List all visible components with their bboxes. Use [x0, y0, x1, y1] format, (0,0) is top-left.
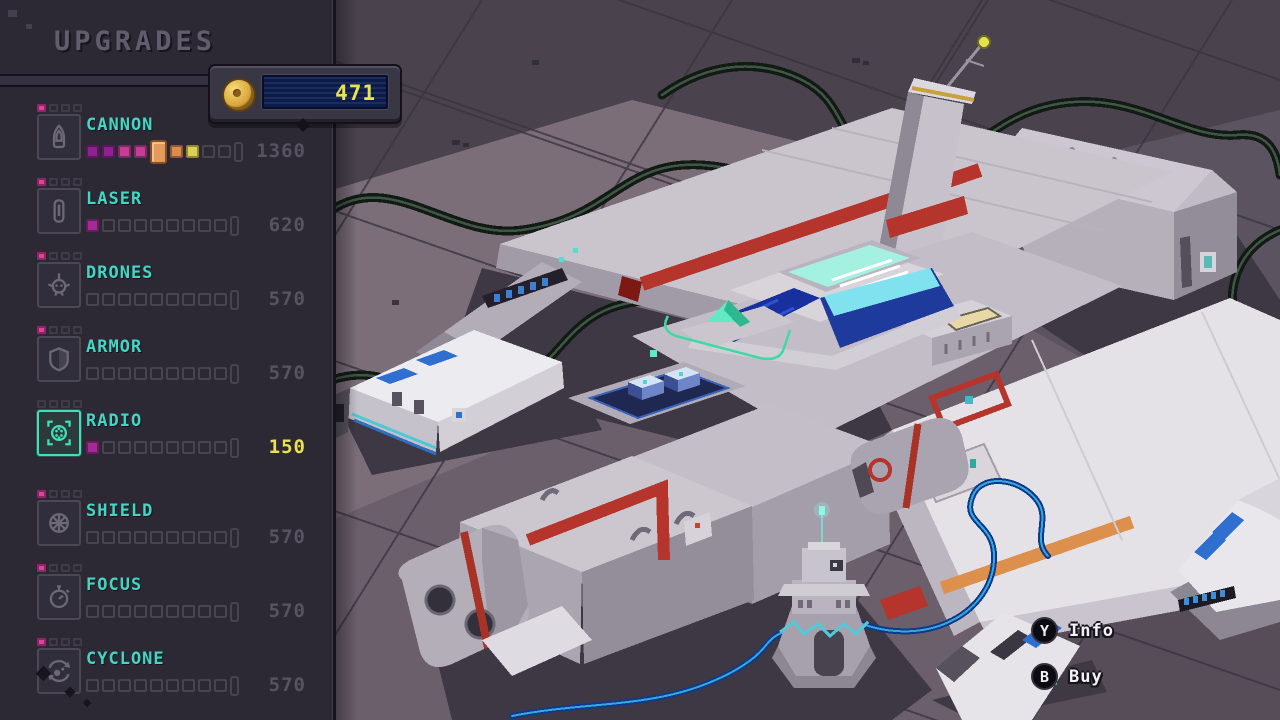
upgrade-name: FOCUS: [86, 575, 142, 595]
upgrade-name: RADIO: [86, 411, 142, 431]
upgrade-price: 570: [214, 362, 306, 384]
screw-decoration: [26, 24, 32, 29]
focus-icon: [37, 574, 81, 620]
radio-icon: [37, 410, 81, 456]
bar-cell: [150, 441, 163, 454]
bar-cell: [102, 605, 115, 618]
bar-cell: [166, 441, 179, 454]
bar-cell: [118, 531, 131, 544]
bar-cell: [150, 219, 163, 232]
bar-cell: [102, 367, 115, 380]
upgrade-row-shield[interactable]: SHIELD 570: [0, 490, 333, 558]
bar-cell: [86, 679, 99, 692]
bar-cell: [134, 531, 147, 544]
level-pip: [37, 400, 46, 408]
bar-cell: [198, 219, 211, 232]
bar-cell: [86, 531, 99, 544]
bar-cell: [198, 441, 211, 454]
upgrade-pips: [37, 326, 82, 334]
bar-cell: [102, 531, 115, 544]
upgrade-row-laser[interactable]: LASER 620: [0, 178, 333, 246]
drones-icon: [37, 262, 81, 308]
bar-cell: [118, 679, 131, 692]
upgrade-screen: UPGRADES CANNON 1360 LASER 620 DRONES 57…: [0, 0, 1280, 720]
bar-cell: [134, 219, 147, 232]
level-pip: [61, 326, 70, 334]
bar-cell: [198, 679, 211, 692]
level-pip: [37, 326, 46, 334]
bar-cell: [186, 145, 199, 158]
bar-cell: [182, 531, 195, 544]
bar-cell: [86, 441, 99, 454]
bar-cell: [182, 367, 195, 380]
currency-display: 471: [262, 75, 388, 109]
bar-cell: [118, 441, 131, 454]
antenna-beacon: [978, 36, 990, 48]
level-pip: [61, 252, 70, 260]
upgrade-pips: [37, 638, 82, 646]
upgrade-price: 620: [214, 214, 306, 236]
upgrade-price: 570: [214, 288, 306, 310]
bar-cell: [134, 145, 147, 158]
upgrade-name: SHIELD: [86, 501, 153, 521]
bar-cell: [166, 679, 179, 692]
level-pip: [49, 252, 58, 260]
prompt-info-label: Info: [1069, 621, 1114, 641]
bar-cell: [86, 605, 99, 618]
bar-cell: [134, 441, 147, 454]
bar-cell: [166, 531, 179, 544]
bar-cell: [166, 219, 179, 232]
bar-cell: [86, 367, 99, 380]
bar-cell: [182, 679, 195, 692]
bar-cursor: [150, 140, 167, 164]
level-pip: [73, 104, 82, 112]
level-pip: [49, 400, 58, 408]
bar-cell: [102, 293, 115, 306]
bar-cell: [102, 441, 115, 454]
bar-cell: [166, 293, 179, 306]
level-pip: [37, 564, 46, 572]
level-pip: [73, 638, 82, 646]
level-pip: [49, 178, 58, 186]
bar-cell: [134, 293, 147, 306]
bar-cell: [182, 441, 195, 454]
upgrade-name: LASER: [86, 189, 142, 209]
divider: [0, 74, 209, 87]
prompt-info[interactable]: Y Info: [1031, 617, 1114, 644]
level-pip: [37, 104, 46, 112]
level-pip: [61, 178, 70, 186]
bar-cell: [118, 605, 131, 618]
level-pip: [49, 490, 58, 498]
upgrade-name: DRONES: [86, 263, 153, 283]
bar-cell: [102, 145, 115, 158]
bar-cell: [102, 679, 115, 692]
upgrade-pips: [37, 400, 82, 408]
b-button-icon[interactable]: B: [1031, 663, 1058, 690]
upgrade-name: CANNON: [86, 115, 153, 135]
upgrade-name: CYCLONE: [86, 649, 165, 669]
bar-cell: [134, 367, 147, 380]
upgrade-pips: [37, 104, 82, 112]
bar-cell: [182, 605, 195, 618]
level-pip: [37, 490, 46, 498]
bar-cell: [150, 531, 163, 544]
level-pip: [49, 326, 58, 334]
bar-cell: [118, 219, 131, 232]
screw-decoration: [8, 10, 17, 17]
ship-scene: [332, 0, 1280, 720]
bar-cell: [150, 679, 163, 692]
upgrade-price: 570: [214, 600, 306, 622]
upgrade-pips: [37, 490, 82, 498]
bar-cell: [150, 367, 163, 380]
level-pip: [37, 638, 46, 646]
upgrade-pips: [37, 178, 82, 186]
bar-cell: [198, 293, 211, 306]
upgrade-row-focus[interactable]: FOCUS 570: [0, 564, 333, 632]
upgrade-price: 570: [214, 674, 306, 696]
level-pip: [73, 490, 82, 498]
bar-cell: [150, 293, 163, 306]
bar-cell: [170, 145, 183, 158]
currency-panel: 471: [208, 64, 402, 124]
coin-icon: [222, 78, 256, 112]
bar-cell: [166, 367, 179, 380]
upgrade-price: 1360: [214, 140, 306, 162]
upgrade-row-drones[interactable]: DRONES 570: [0, 252, 333, 320]
bar-cell: [134, 679, 147, 692]
bar-cell: [198, 367, 211, 380]
bar-cell: [102, 219, 115, 232]
level-pip: [49, 638, 58, 646]
level-pip: [49, 564, 58, 572]
bar-cell: [166, 605, 179, 618]
armor-icon: [37, 336, 81, 382]
level-pip: [61, 638, 70, 646]
level-pip: [37, 178, 46, 186]
bar-cell: [86, 293, 99, 306]
bar-cell: [198, 605, 211, 618]
bar-cell: [86, 219, 99, 232]
bar-cell: [150, 605, 163, 618]
shield-icon: [37, 500, 81, 546]
upgrade-row-armor[interactable]: ARMOR 570: [0, 326, 333, 394]
cannon-icon: [37, 114, 81, 160]
bar-cell: [118, 293, 131, 306]
bar-cell: [118, 367, 131, 380]
level-pip: [61, 400, 70, 408]
level-pip: [73, 178, 82, 186]
bar-cell: [198, 531, 211, 544]
bar-cell: [86, 145, 99, 158]
level-pip: [73, 400, 82, 408]
level-pip: [61, 564, 70, 572]
level-pip: [73, 252, 82, 260]
y-button-icon[interactable]: Y: [1031, 617, 1058, 644]
upgrade-pips: [37, 564, 82, 572]
upgrade-price: 150: [214, 436, 306, 458]
page-title: UPGRADES: [54, 26, 216, 57]
bar-cell: [182, 219, 195, 232]
level-pip: [73, 564, 82, 572]
level-pip: [61, 104, 70, 112]
level-pip: [61, 490, 70, 498]
level-pip: [37, 252, 46, 260]
level-pip: [73, 326, 82, 334]
prompt-buy-label: Buy: [1069, 667, 1103, 687]
prompt-buy[interactable]: B Buy: [1031, 663, 1103, 690]
upgrade-price: 570: [214, 526, 306, 548]
upgrade-name: ARMOR: [86, 337, 142, 357]
upgrade-pips: [37, 252, 82, 260]
laser-icon: [37, 188, 81, 234]
level-pip: [49, 104, 58, 112]
upgrade-row-radio[interactable]: RADIO 150: [0, 400, 333, 468]
bar-cell: [182, 293, 195, 306]
bar-cell: [118, 145, 131, 158]
bar-cell: [134, 605, 147, 618]
